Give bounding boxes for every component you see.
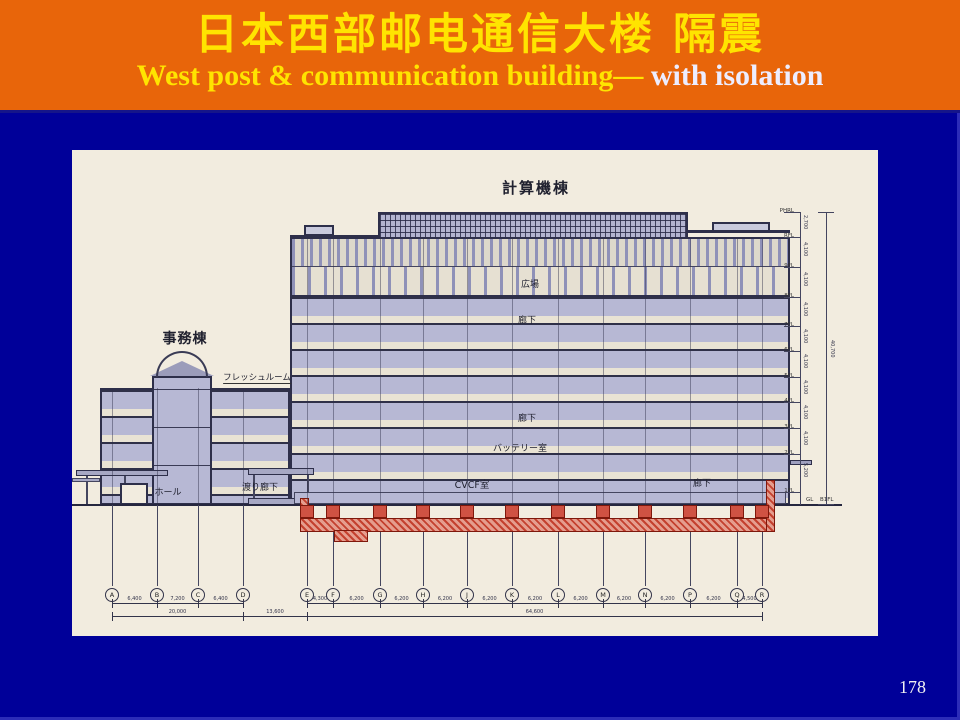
- hall-label: ホール: [154, 485, 181, 498]
- column-line: [307, 237, 308, 505]
- left-apron-slab: [72, 478, 100, 482]
- story-dimension-text: 4,100: [802, 329, 808, 349]
- total-height-dimension: 40,700: [829, 340, 835, 366]
- level-label: 3FL: [768, 424, 794, 430]
- level-label: 9FL: [768, 263, 794, 269]
- pile-line: [690, 532, 691, 586]
- pile-line: [423, 532, 424, 586]
- dimension-text: 6,400: [201, 596, 241, 602]
- pile-line: [558, 532, 559, 586]
- story-dimension-text: 4,100: [802, 431, 808, 451]
- dimension-text: 7,200: [158, 596, 198, 602]
- dim-line: [112, 603, 243, 604]
- corridor-upper-label: 廊下: [518, 313, 536, 326]
- first-floor-slab: [294, 492, 786, 504]
- column-line: [112, 388, 113, 505]
- pile-line: [603, 532, 604, 586]
- pile-line: [737, 532, 738, 586]
- cvcf-room-label: CVCF室: [455, 477, 490, 491]
- office-building-label: 事務棟: [163, 328, 208, 348]
- dim-tick: [690, 599, 691, 608]
- corridor-mid-label: 廊下: [518, 411, 536, 424]
- isolation-bearing: [505, 505, 519, 518]
- column-line: [690, 237, 691, 505]
- left-roof-bulkhead: [304, 225, 334, 236]
- bridge-roof-slab: [248, 468, 314, 475]
- dimension-text: 6,200: [604, 596, 644, 602]
- fresh-room-label: フレッシュルーム: [223, 371, 291, 384]
- story-dimension-text: 4,100: [802, 272, 808, 292]
- page-number: 178: [899, 677, 926, 698]
- isolation-bearing: [416, 505, 430, 518]
- pile-line: [512, 532, 513, 586]
- dim-tick: [423, 599, 424, 608]
- pile-line: [307, 532, 308, 586]
- dim-tick: [112, 612, 113, 621]
- ground-level-label: GL: [806, 497, 813, 503]
- column-line: [157, 388, 158, 505]
- isolation-bearing: [326, 505, 340, 518]
- column-line: [737, 237, 738, 505]
- level-tick: [818, 212, 834, 213]
- machine-hall-columns-lower: [292, 267, 788, 297]
- column-line: [198, 388, 199, 505]
- isolation-foundation-mat: [300, 518, 775, 532]
- subtitle-accent-text: with isolation: [643, 59, 823, 92]
- corridor-right-label: 廊下: [693, 476, 711, 489]
- slide-header: 日本西部邮电通信大楼 隔震 West post & communication …: [0, 0, 960, 113]
- level-tick: [818, 504, 834, 505]
- pile-line: [198, 505, 199, 586]
- dim-tick: [558, 599, 559, 608]
- dimension-text: 4,300: [300, 596, 340, 602]
- column-line: [423, 237, 424, 505]
- level-label: 2FL: [768, 450, 794, 456]
- pile-line: [243, 505, 244, 586]
- column-line: [512, 237, 513, 505]
- level-ruler-line: [800, 212, 801, 505]
- right-canopy: [790, 460, 812, 465]
- level-label: RFL: [768, 233, 794, 239]
- ground-line: [72, 504, 842, 506]
- dim-tick: [467, 599, 468, 608]
- column-line: [380, 237, 381, 505]
- dim-line: [307, 603, 762, 604]
- isolation-bearing: [551, 505, 565, 518]
- isolation-pit: [334, 530, 368, 542]
- entrance-canopy: [76, 470, 168, 476]
- pile-line: [157, 505, 158, 586]
- roof-penthouse-truss: [378, 212, 688, 239]
- column-line: [243, 388, 244, 505]
- machine-hall-columns-upper: [292, 239, 788, 267]
- level-label: 5FL: [768, 373, 794, 379]
- isolation-bearing: [460, 505, 474, 518]
- connecting-corridor-label: 渡り廊下: [242, 480, 278, 493]
- level-label: 4FL: [768, 398, 794, 404]
- story-dimension-text: 4,100: [802, 354, 808, 374]
- entrance-box: [120, 483, 148, 505]
- isolation-bearing: [683, 505, 697, 518]
- pile-line: [112, 505, 113, 586]
- story-dimension-text: 5,200: [802, 463, 808, 483]
- dim-tick: [512, 599, 513, 608]
- column-line: [762, 237, 763, 505]
- story-dimension-text: 4,100: [802, 302, 808, 322]
- dim-tick: [645, 599, 646, 608]
- column-line: [467, 237, 468, 505]
- right-roof-bulkhead: [712, 222, 770, 232]
- plaza-label: 広場: [521, 277, 539, 290]
- pile-line: [762, 532, 763, 586]
- story-dimension-text: 4,100: [802, 405, 808, 425]
- dim-tick: [198, 599, 199, 608]
- dim-tick: [243, 612, 244, 621]
- dimension-text: 6,200: [337, 596, 377, 602]
- dim-tick: [307, 612, 308, 621]
- subtitle-main-text: West post & communication building—: [137, 59, 644, 92]
- isolation-bearing: [373, 505, 387, 518]
- column-line: [603, 237, 604, 505]
- column-line: [645, 237, 646, 505]
- dimension-text: 6,200: [470, 596, 510, 602]
- drawing-panel: 計算機棟 事務棟 フレッシュルーム 広場 廊下 廊下 バッテリー室 CVCF室 …: [72, 150, 878, 636]
- dimension-text: 13,600: [255, 609, 295, 615]
- computer-building-label: 計算機棟: [502, 177, 570, 198]
- dimension-text: 6,400: [115, 596, 155, 602]
- main-building-floors: [292, 297, 788, 503]
- dim-tick: [762, 612, 763, 621]
- dimension-text: 20,000: [158, 609, 198, 615]
- slide-title-chinese: 日本西部邮电通信大楼 隔震: [0, 0, 960, 59]
- dimension-text: 6,200: [425, 596, 465, 602]
- pile-line: [333, 532, 334, 586]
- isolation-bearing: [596, 505, 610, 518]
- battery-room-label: バッテリー室: [493, 441, 547, 454]
- isolation-bearing: [638, 505, 652, 518]
- dimension-text: 64,600: [515, 609, 555, 615]
- level-ruler-outer-line: [826, 212, 827, 505]
- basement-level-label: B1FL: [820, 497, 834, 503]
- level-label: 1FL: [768, 488, 794, 494]
- level-label: PHRL: [768, 208, 794, 214]
- level-label: 8FL: [768, 293, 794, 299]
- level-label: 6FL: [768, 347, 794, 353]
- dimension-text: 6,200: [648, 596, 688, 602]
- dim-tick: [112, 599, 113, 608]
- isolation-bearing: [730, 505, 744, 518]
- pile-line: [645, 532, 646, 586]
- isolation-bearing: [300, 505, 314, 518]
- isolation-bearing: [755, 505, 769, 518]
- column-line: [333, 237, 334, 505]
- dimension-text: 6,200: [694, 596, 734, 602]
- column-line: [558, 237, 559, 505]
- level-label: 7FL: [768, 322, 794, 328]
- dimension-text: 6,200: [561, 596, 601, 602]
- slide-subtitle: West post & communication building— with…: [0, 59, 960, 94]
- dim-line: [112, 616, 762, 617]
- presentation-slide: 日本西部邮电通信大楼 隔震 West post & communication …: [0, 0, 960, 720]
- dimension-text: 6,200: [382, 596, 422, 602]
- pile-line: [467, 532, 468, 586]
- dimension-text: 6,200: [515, 596, 555, 602]
- dimension-text: 4,500: [730, 596, 770, 602]
- pile-line: [380, 532, 381, 586]
- office-dome: [156, 351, 208, 377]
- dim-tick: [243, 599, 244, 608]
- story-dimension-text: 2,700: [802, 215, 808, 235]
- story-dimension-text: 4,100: [802, 242, 808, 262]
- story-dimension-text: 4,100: [802, 380, 808, 400]
